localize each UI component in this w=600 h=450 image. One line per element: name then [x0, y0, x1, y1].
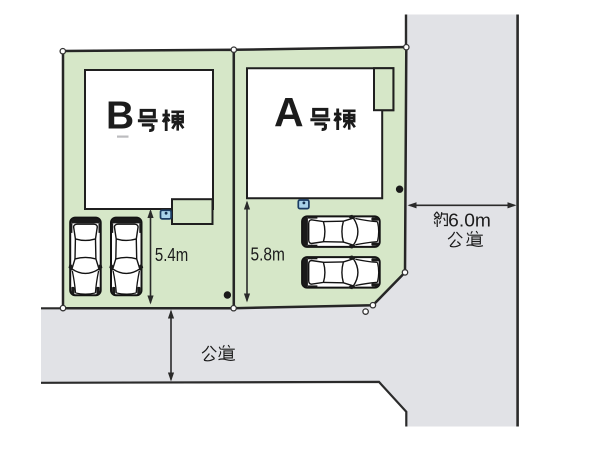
svg-text:B: B — [106, 95, 134, 138]
svg-text:6.0m: 6.0m — [448, 210, 491, 230]
svg-text:5.8m: 5.8m — [251, 245, 285, 265]
svg-text:A: A — [274, 89, 304, 135]
svg-text:5.4m: 5.4m — [155, 245, 188, 265]
